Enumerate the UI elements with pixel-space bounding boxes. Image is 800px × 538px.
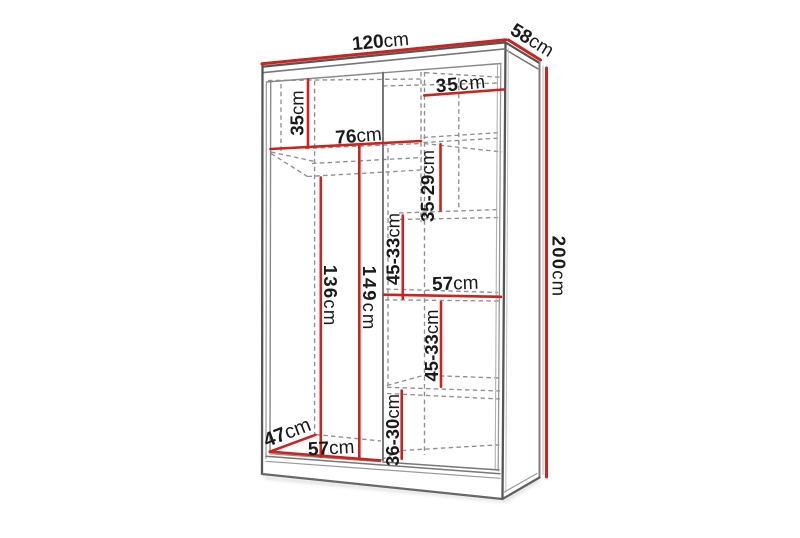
svg-text:36-30cm: 36-30cm (382, 394, 403, 466)
svg-text:200cm: 200cm (549, 236, 570, 298)
svg-text:45-33cm: 45-33cm (421, 310, 442, 382)
svg-text:35-29cm: 35-29cm (417, 150, 438, 222)
svg-text:136cm: 136cm (320, 265, 341, 327)
svg-text:149cm: 149cm (359, 266, 380, 332)
svg-text:76cm: 76cm (335, 124, 383, 149)
svg-text:35cm: 35cm (287, 90, 308, 135)
svg-text:57cm: 57cm (307, 437, 355, 460)
svg-text:57cm: 57cm (432, 273, 479, 296)
svg-text:45-33cm: 45-33cm (383, 213, 404, 285)
